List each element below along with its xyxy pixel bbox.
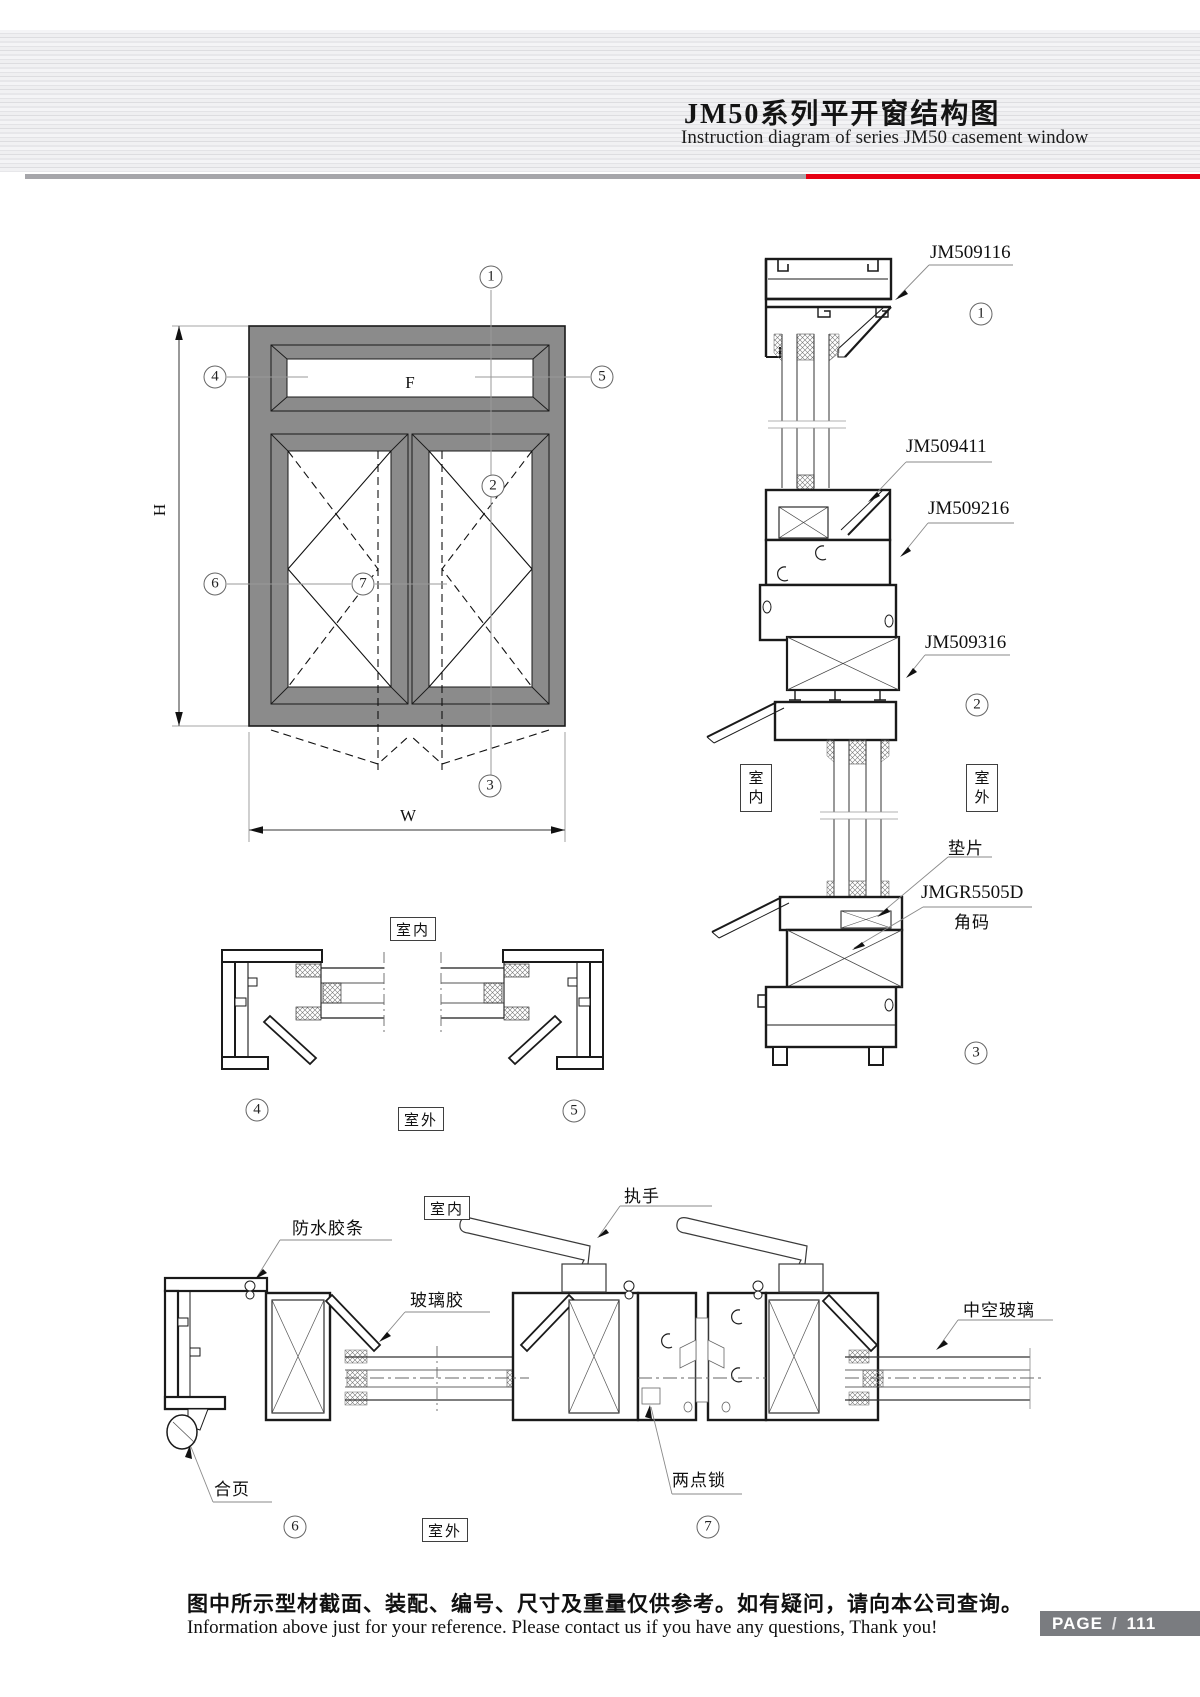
callout-1: 1: [480, 266, 503, 289]
outdoor-label-bottom: 室外: [422, 1518, 468, 1542]
two-point-lock-label: 两点锁: [672, 1466, 726, 1491]
page-subtitle: Instruction diagram of series JM50 casem…: [681, 127, 1088, 149]
catalog-page: JM50系列平开窗结构图 Instruction diagram of seri…: [0, 0, 1200, 1697]
callout-section-1: 1: [970, 303, 993, 326]
bottom-section-drawing: [140, 1200, 1070, 1510]
corner-code-number-label: JMGR5505D: [921, 882, 1023, 904]
callout-7: 7: [352, 573, 375, 596]
callout-2: 2: [482, 475, 505, 498]
waterproof-strip-label: 防水胶条: [292, 1214, 364, 1239]
page-number-badge: PAGE / 111: [1040, 1611, 1200, 1636]
page-separator: /: [1112, 1614, 1118, 1634]
callout-6: 6: [204, 573, 227, 596]
part-label-jm509411: JM509411: [906, 436, 987, 458]
hinge-label: 合页: [214, 1475, 250, 1500]
page-title: JM50系列平开窗结构图: [684, 92, 1000, 132]
handle-label: 执手: [624, 1182, 660, 1207]
width-dim-label: W: [400, 806, 416, 826]
height-dim-label: H: [150, 504, 170, 516]
callout-section-7: 7: [697, 1516, 720, 1539]
callout-section-4: 4: [246, 1099, 269, 1122]
callout-3: 3: [479, 775, 502, 798]
callout-5: 5: [591, 366, 614, 389]
insulating-glass-label: 中空玻璃: [963, 1296, 1035, 1321]
glass-glue-label: 玻璃胶: [410, 1286, 464, 1311]
callout-section-5: 5: [563, 1100, 586, 1123]
indoor-label-vertical: 室内: [740, 764, 772, 812]
indoor-label-mid: 室内: [390, 917, 436, 941]
part-label-jm509316: JM509316: [925, 632, 1006, 654]
page-number: 111: [1127, 1614, 1157, 1634]
horizontal-section-drawing: [190, 940, 630, 1080]
part-label-jm509216: JM509216: [928, 498, 1009, 520]
page-label: PAGE: [1052, 1614, 1103, 1634]
corner-code-label: 角码: [954, 908, 990, 933]
divider-gray: [25, 174, 806, 179]
divider-red: [806, 174, 1200, 179]
fixed-pane-label: F: [405, 373, 414, 393]
part-label-jm509116: JM509116: [930, 242, 1011, 264]
callout-section-2: 2: [966, 694, 989, 717]
elevation-drawing: [140, 230, 640, 860]
outdoor-label-vertical: 室外: [966, 764, 998, 812]
indoor-label-bottom: 室内: [424, 1196, 470, 1220]
outdoor-label-mid: 室外: [398, 1107, 444, 1131]
footer-note-en: Information above just for your referenc…: [187, 1617, 937, 1639]
callout-section-6: 6: [284, 1516, 307, 1539]
shim-label: 垫片: [948, 834, 984, 859]
footer-note-zh: 图中所示型材截面、装配、编号、尺寸及重量仅供参考。如有疑问，请向本公司查询。: [187, 1588, 1023, 1618]
callout-section-3: 3: [965, 1042, 988, 1065]
callout-4: 4: [204, 366, 227, 389]
header-stripe-band: [0, 30, 1200, 172]
vertical-section-drawing: [680, 235, 1110, 1115]
